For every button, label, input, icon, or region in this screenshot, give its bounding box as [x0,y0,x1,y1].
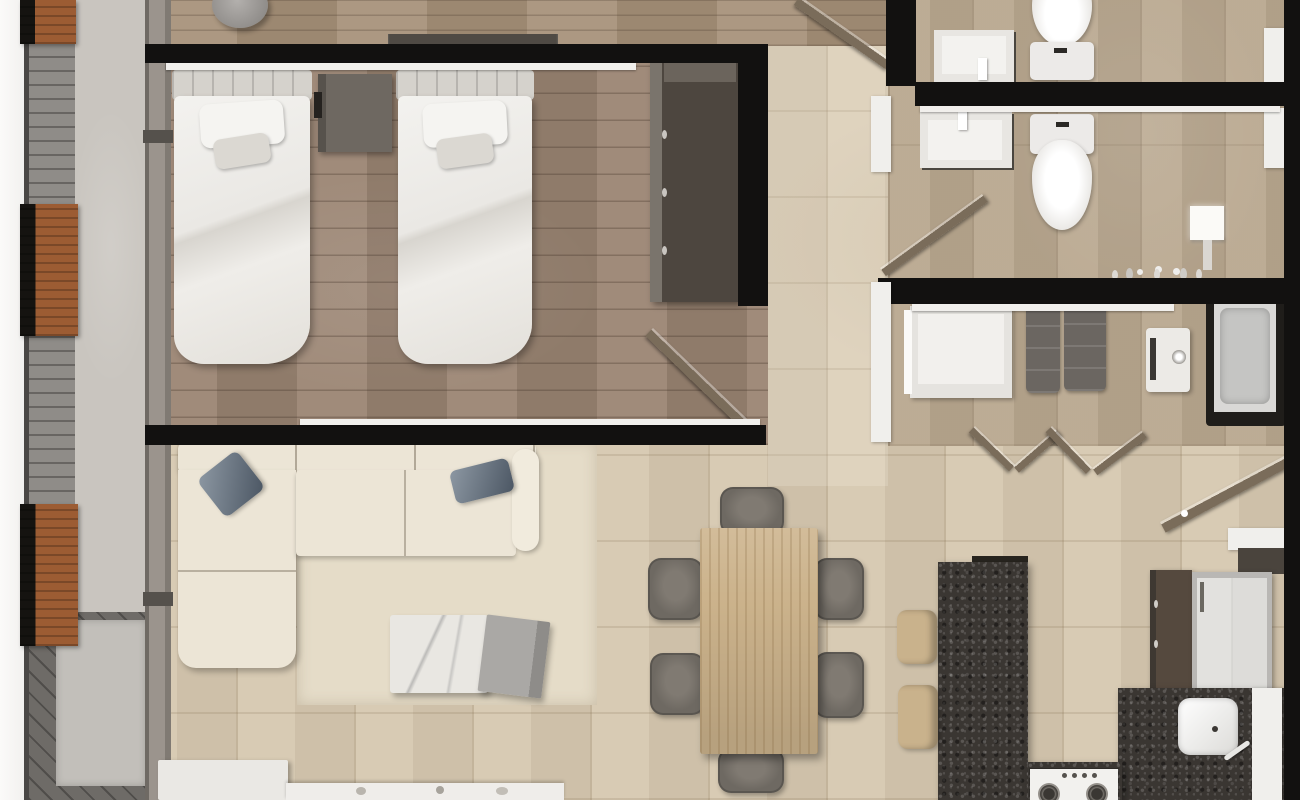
wall-trim [912,304,1174,311]
bed-2 [396,70,534,366]
wardrobe [650,60,738,302]
laundry-mat [1026,303,1060,393]
planter [20,204,78,336]
wall-right-exterior [1284,0,1300,800]
kitchen [890,520,1300,800]
balcony-outer-edge [0,0,24,800]
tv-bench [158,760,288,800]
planter [20,504,78,646]
kitchen-window-ledge [1252,688,1282,800]
balcony-walkway [75,0,147,616]
sink-drain [1212,726,1218,732]
wardrobe-shelf [664,62,736,82]
shower-valve [1137,269,1143,275]
nightstand [318,74,392,152]
shower-panel [1190,206,1224,240]
bedroom [147,44,768,445]
flush-button [1054,48,1067,53]
wardrobe-handle [662,130,667,139]
fridge-door [1197,578,1267,690]
sofa-armrest [512,449,539,551]
kitchen-island [938,562,1028,800]
coffee-table-marble [390,615,488,693]
wardrobe-handle [662,246,667,255]
dining-chair [648,558,703,620]
wall-bedroom-right [738,44,768,306]
dining-chair [718,748,784,793]
cabinet-handle [1154,600,1158,608]
vanity-sink [934,30,1014,82]
kitchen-sink [1178,698,1238,755]
bar-stool [898,685,938,749]
vanity-top [918,314,1004,384]
corner-ledge [1228,528,1284,550]
cooktop-knob [1072,773,1077,778]
console-decor [496,787,508,795]
vanity-lip [904,310,912,394]
toilet-bowl [1032,0,1092,46]
cooktop [1030,769,1118,800]
bed-1 [172,70,312,366]
cooktop-knob [1092,773,1097,778]
wall-pilaster [871,282,891,442]
console [286,783,564,800]
dining-chair [650,653,705,715]
washer-slot [1150,338,1156,380]
dining-table [700,528,818,754]
bathroom-top [915,0,1286,84]
cooktop-knob [1082,773,1087,778]
coffee-table-tray [478,614,551,698]
floor-plan [0,0,1300,800]
wall-bedroom-top [145,44,768,63]
tub-basin [1220,308,1270,404]
door-handle [1181,510,1188,517]
dining-chair [814,652,864,718]
wall-pilaster [871,96,891,172]
fridge-handle [1200,582,1204,612]
flush-button [1056,122,1069,127]
bathtub [1206,292,1286,426]
laundry-mat [1064,303,1106,391]
burner [1038,783,1060,800]
toilet-tank [1030,42,1094,80]
bathroom-shower [915,104,1286,280]
console-decor [356,787,366,795]
dining-chair [814,558,864,620]
laundry-vanity [910,306,1012,398]
balcony [0,0,147,800]
wall-laundry-top [878,278,1300,304]
hallway-floor [768,46,888,486]
nightstand-lamp [314,92,322,118]
planter [20,0,76,44]
shower-valve [1173,268,1180,275]
wall-bedroom-bottom [145,425,766,445]
wardrobe-handle [662,188,667,197]
shower-arm [1203,240,1212,270]
wall-bath-left [886,0,916,86]
vanity-sink [920,112,1012,168]
wall-bath-divider [915,82,1300,106]
laundry-bath [900,290,1300,440]
wall-trim [166,63,636,70]
refrigerator [1192,572,1272,696]
console-decor [436,786,444,794]
cooktop-knob [1062,773,1067,778]
washer [1146,328,1190,392]
burner [1086,783,1108,800]
washer-knob [1172,350,1186,364]
wall-trim [920,106,1280,112]
tall-cabinet [1150,570,1192,690]
faucet [958,110,967,130]
dining-area [620,470,890,800]
cabinet-handle [1154,640,1158,648]
wall-trim [300,419,760,425]
basin [942,36,1006,74]
faucet [978,58,987,80]
toilet-bowl [1032,140,1092,230]
bar-stool [897,610,937,664]
